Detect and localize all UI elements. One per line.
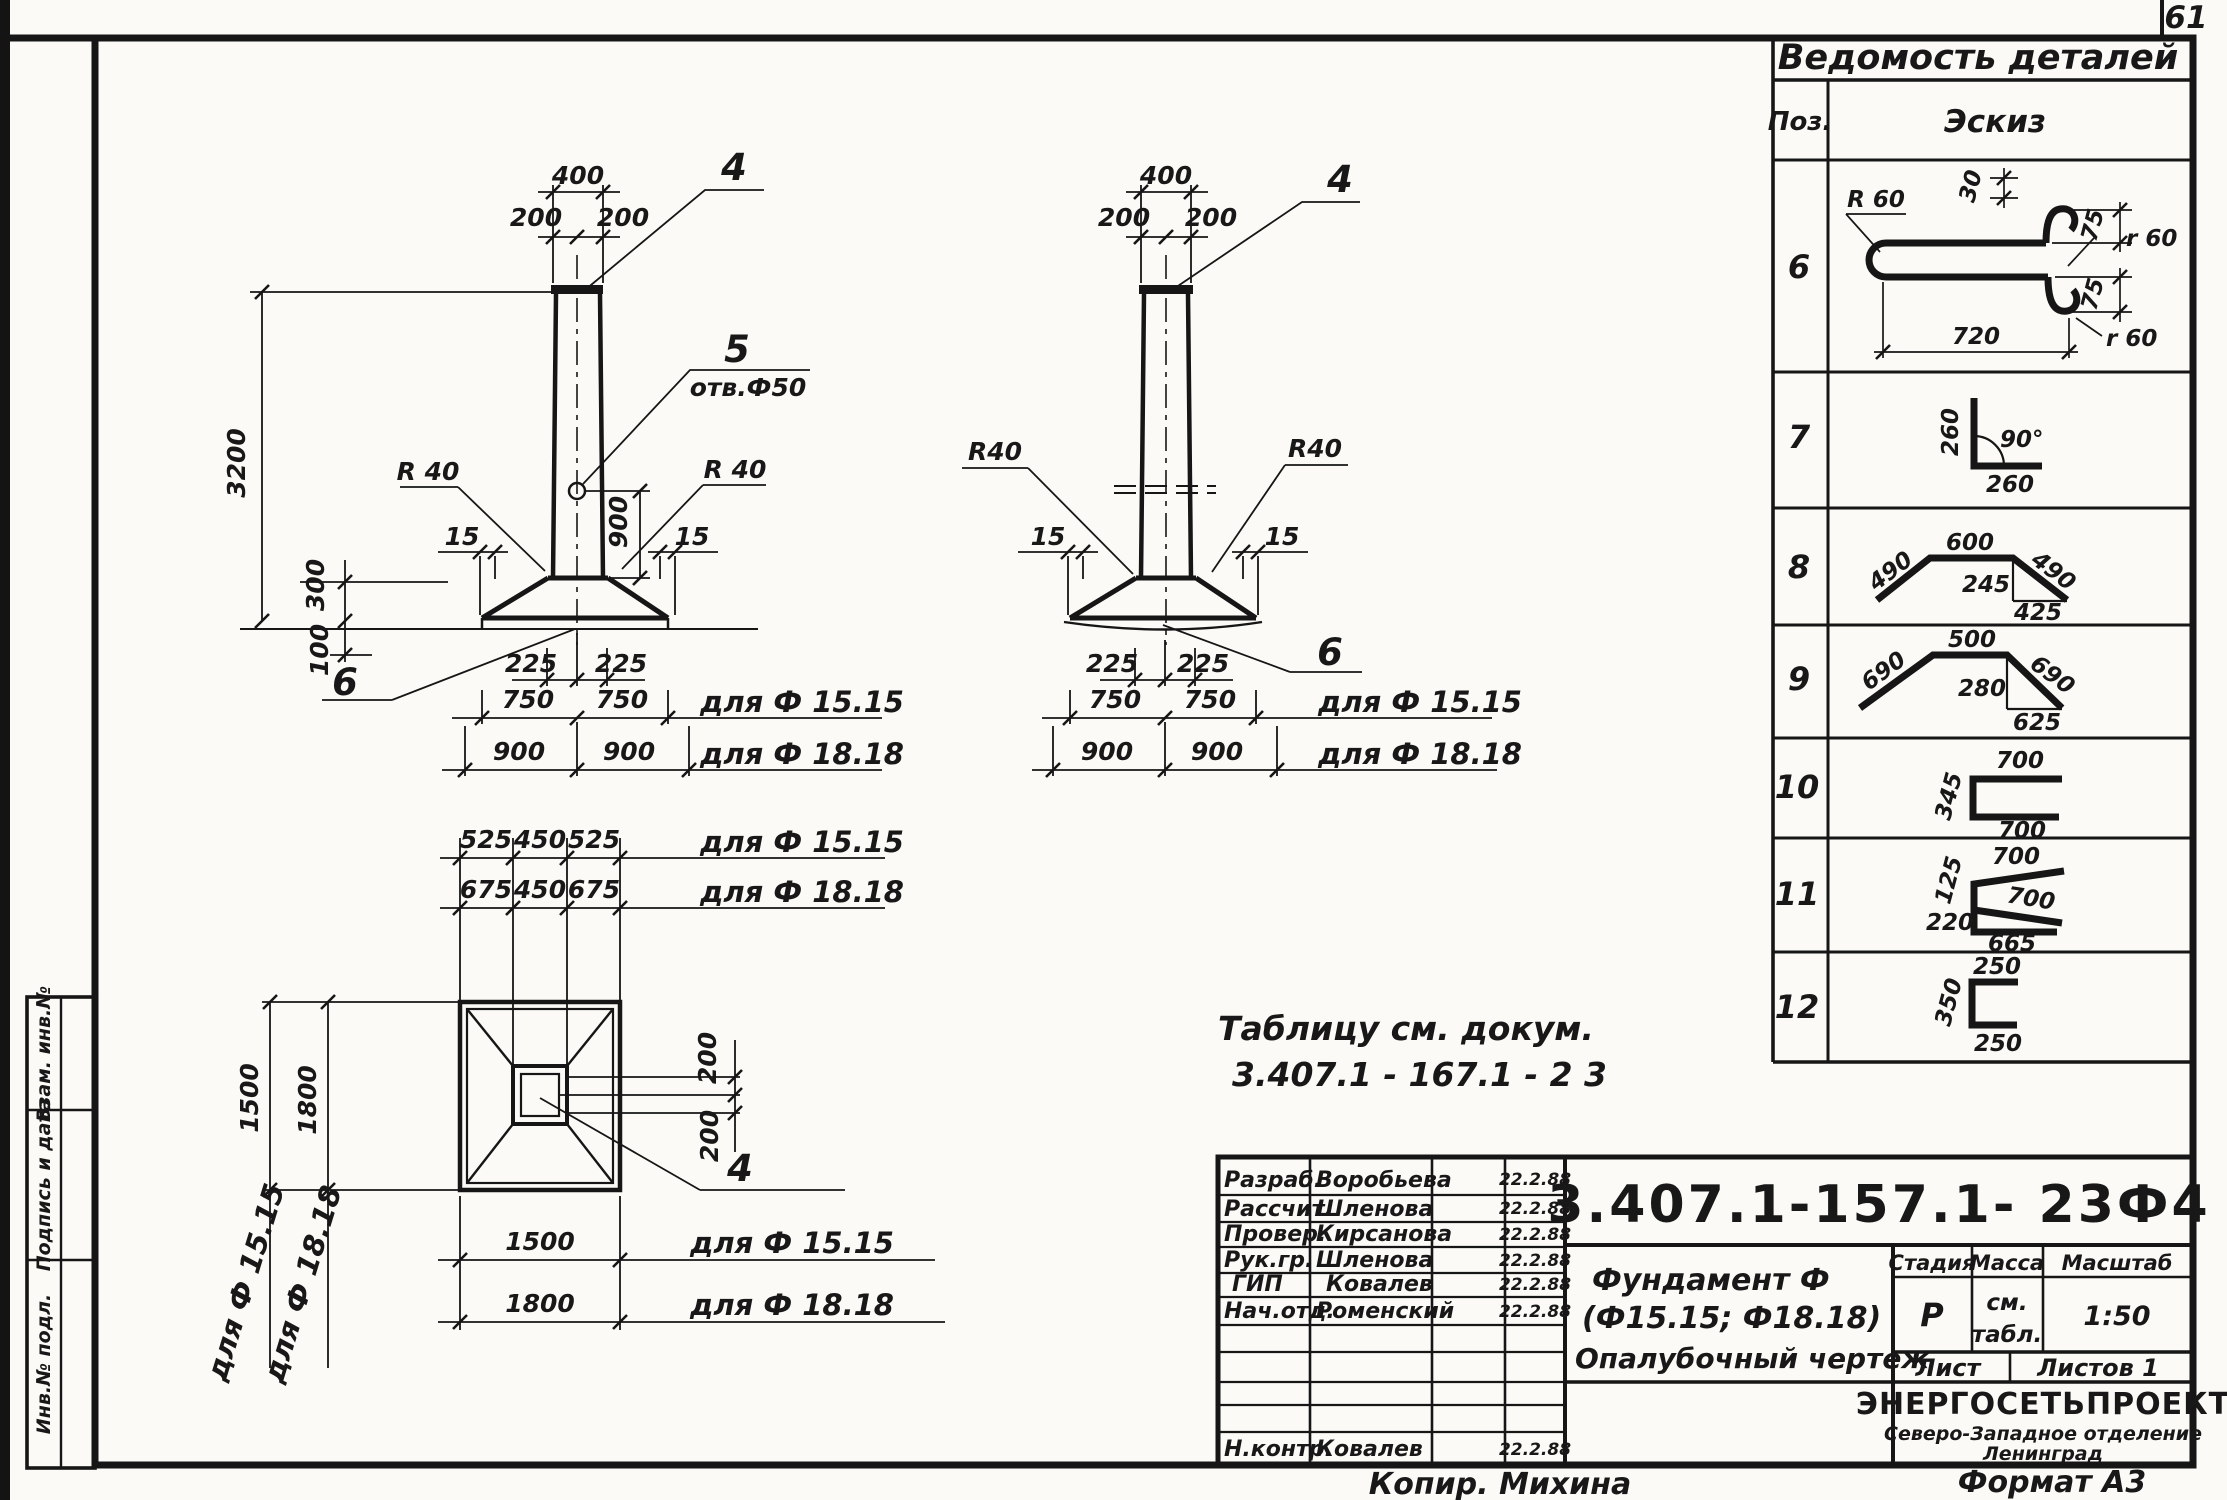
callout-5: 5 <box>724 328 750 371</box>
mass-header: Масса <box>1970 1251 2044 1275</box>
dim-label: 400 <box>551 161 604 190</box>
detail-dim: 250 <box>1974 1031 2022 1057</box>
dim-label: 200 <box>597 203 649 232</box>
note-line-1: Таблицу см. докум. <box>1218 1009 1594 1048</box>
detail-10-sketch <box>1973 779 2062 817</box>
radius-label: R40 <box>1288 434 1342 463</box>
detail-dim: 700 <box>1998 818 2046 844</box>
detail-dim: 260 <box>1986 472 2034 498</box>
dim-label: 400 <box>1139 161 1192 190</box>
pos-number: 12 <box>1775 988 1820 1026</box>
stamp-inv-podl: Инв.№ подл. <box>33 1294 55 1434</box>
variant-label: для Ф 18.18 <box>1317 737 1522 771</box>
dim-label: 525 <box>568 825 620 854</box>
detail-dim: 625 <box>2013 710 2061 736</box>
sig-date: 22.2.88 <box>1499 1302 1571 1322</box>
dim-label: 200 <box>695 1110 724 1162</box>
pos-number: 11 <box>1775 875 1820 913</box>
document-number: 3.407.1-157.1- 23Ф4 <box>1547 1175 2210 1235</box>
dim-label: 900 <box>493 737 545 766</box>
sheet-label: Лист <box>1915 1354 1983 1382</box>
dim-label: 200 <box>693 1032 722 1084</box>
detail-dim: 700 <box>2005 882 2056 915</box>
mass-value-line2: табл. <box>1972 1322 2043 1348</box>
dim-label: 750 <box>502 685 554 714</box>
dim-label: 225 <box>1177 649 1229 678</box>
hole-label: отв.Ф50 <box>690 373 807 402</box>
dim-label: 900 <box>604 496 633 548</box>
sig-role: Рук.гр. <box>1224 1248 1313 1273</box>
sig-role: ГИП <box>1232 1272 1283 1297</box>
pos-number: 7 <box>1788 418 1811 456</box>
sig-name: Шленова <box>1316 1248 1433 1273</box>
dim-label: 15 <box>1031 522 1066 551</box>
dim-label: 200 <box>510 203 562 232</box>
variant-label: для Ф 15.15 <box>699 825 904 859</box>
detail-dim: 350 <box>1930 976 1968 1029</box>
page-number: 61 <box>2164 0 2207 36</box>
dim-label: 15 <box>1265 522 1300 551</box>
sig-name: Шленова <box>1316 1197 1433 1222</box>
stamp-podpis-data: Подпись и дата <box>33 1099 55 1272</box>
sig-date: 22.2.88 <box>1499 1199 1571 1219</box>
detail-dim: 260 <box>1938 408 1964 456</box>
dim-label: 1500 <box>235 1063 264 1133</box>
detail-dim: 30 <box>1955 167 1988 205</box>
dim-label: 675 <box>568 875 620 904</box>
detail-dim: 245 <box>1962 572 2010 598</box>
dim-label: 300 <box>301 559 330 611</box>
detail-dim: r 60 <box>2126 226 2177 252</box>
drawing-title-line2: (Ф15.15; Ф18.18) <box>1582 1301 1881 1336</box>
scan-edge <box>0 0 10 1500</box>
detail-dim: r 60 <box>2106 326 2157 352</box>
drawing-canvas: 61 Взам. инв.№ Подпись и дата Инв.№ подл… <box>0 0 2227 1500</box>
dim-label: 450 <box>513 825 566 854</box>
drawing-sheet: 61 Взам. инв.№ Подпись и дата Инв.№ подл… <box>0 0 2227 1500</box>
variant-label: для Ф 15.15 <box>1317 685 1522 719</box>
stage-header: Стадия <box>1889 1251 1976 1275</box>
drawing-title-line3: Опалубочный чертеж <box>1575 1342 1930 1375</box>
dim-label: 1800 <box>505 1289 575 1318</box>
dim-label: 900 <box>603 737 655 766</box>
detail-dim: 425 <box>2013 600 2062 626</box>
dim-label: 3200 <box>222 428 251 498</box>
sig-role: Разраб. <box>1224 1168 1322 1193</box>
sig-name: Воробьева <box>1316 1168 1452 1193</box>
detail-dim: 90° <box>2000 427 2044 453</box>
detail-dim: 75 <box>2077 206 2110 244</box>
dim-label: 200 <box>1185 203 1237 232</box>
dim-label: 750 <box>1089 685 1141 714</box>
pos-number: 8 <box>1788 548 1810 586</box>
callout-4: 4 <box>726 1147 753 1190</box>
dim-label: 200 <box>1098 203 1150 232</box>
variant-label: для Ф 15.15 <box>699 685 904 719</box>
variant-label: для Ф 15.15 <box>689 1226 894 1260</box>
plan-view-labels: 525 450 525 для Ф 15.15 675 450 675 для … <box>199 825 904 1388</box>
organization-city: Ленинград <box>1982 1443 2103 1465</box>
sig-name: Ковалев <box>1326 1272 1433 1297</box>
variant-label: для Ф 18.18 <box>699 875 904 909</box>
sig-name: Роменский <box>1316 1299 1454 1324</box>
note-line-2: 3.407.1 - 167.1 - 2 3 <box>1232 1055 1607 1094</box>
detail-dim: 600 <box>1946 530 1994 556</box>
parts-list-title: Ведомость деталей <box>1778 38 2179 78</box>
dim-label: 750 <box>1184 685 1236 714</box>
sig-date: 22.2.88 <box>1499 1170 1571 1190</box>
detail-dim: 125 <box>1930 854 1968 907</box>
dim-label: 900 <box>1191 737 1243 766</box>
variant-label: для Ф 18.18 <box>689 1288 894 1322</box>
callout-4: 4 <box>1326 158 1353 201</box>
pos-number: 9 <box>1788 660 1810 698</box>
sig-date: 22.2.88 <box>1499 1275 1571 1295</box>
dim-label: 100 <box>305 624 334 676</box>
callout-6: 6 <box>332 661 358 704</box>
detail-dim: 690 <box>2025 651 2079 700</box>
pos-number: 6 <box>1788 248 1810 286</box>
dim-label: 675 <box>460 875 512 904</box>
side-elevation-labels: 400 200 200 4 R40 R40 15 15 225 225 750 … <box>968 158 1522 771</box>
dim-label: 1800 <box>293 1065 322 1135</box>
scale-header: Масштаб <box>2062 1251 2173 1275</box>
column-header-pos: Поз. <box>1768 107 1833 137</box>
detail-dim: 720 <box>1952 324 2000 350</box>
sheets-label: Листов 1 <box>2036 1354 2159 1382</box>
title-block-text: 3.407.1-157.1- 23Ф4 Разраб. Воробьева 22… <box>1224 1168 2227 1465</box>
dim-label: 15 <box>445 522 480 551</box>
dim-label: 225 <box>505 649 557 678</box>
sig-date: 22.2.88 <box>1499 1440 1571 1460</box>
radius-label: R40 <box>968 437 1022 466</box>
variant-label: для Ф 18.18 <box>699 737 904 771</box>
dim-label: 225 <box>595 649 647 678</box>
sig-name: Ковалев <box>1316 1437 1423 1462</box>
front-elevation-labels: 400 200 200 4 5 отв.Ф50 3200 R 40 R 40 1… <box>222 146 904 771</box>
dim-label: 525 <box>460 825 512 854</box>
radius-label: R 40 <box>397 457 460 486</box>
detail-dim: 220 <box>1926 910 1974 936</box>
column-header-sketch: Эскиз <box>1944 104 2046 140</box>
organization-branch: Северо-Западное отделение <box>1884 1423 2202 1445</box>
dim-label: 1500 <box>505 1227 575 1256</box>
copier-note: Копир. Михина <box>1369 1467 1631 1500</box>
detail-dim: 280 <box>1958 676 2006 702</box>
format-note: Формат А3 <box>1958 1465 2147 1500</box>
dim-label: 15 <box>675 522 710 551</box>
detail-dim: 75 <box>2077 275 2110 313</box>
detail-dim: 345 <box>1930 770 1968 823</box>
callout-6: 6 <box>1317 631 1343 674</box>
pos-number: 10 <box>1775 768 1820 806</box>
sig-role: Провер. <box>1224 1222 1326 1247</box>
note-text: Таблицу см. докум. 3.407.1 - 167.1 - 2 3 <box>1218 1009 1607 1094</box>
sig-date: 22.2.88 <box>1499 1225 1571 1245</box>
detail-12-sketch <box>1972 982 2018 1025</box>
sig-date: 22.2.88 <box>1499 1251 1571 1271</box>
detail-dim: 700 <box>1996 748 2044 774</box>
detail-dim: 250 <box>1973 954 2021 980</box>
dim-label: 225 <box>1086 649 1138 678</box>
organization-name: ЭНЕРГОСЕТЬПРОЕКТ <box>1856 1387 2227 1422</box>
scale-value: 1:50 <box>2083 1301 2150 1332</box>
dim-label: 750 <box>596 685 648 714</box>
stage-value: Р <box>1920 1296 1944 1334</box>
sig-name: Кирсанова <box>1316 1222 1452 1247</box>
drawing-title-line1: Фундамент Ф <box>1592 1263 1830 1298</box>
mass-value-line1: см. <box>1986 1290 2027 1316</box>
radius-label: R 40 <box>704 455 767 484</box>
detail-dim: 500 <box>1948 627 1996 653</box>
detail-dim: 700 <box>1992 844 2040 870</box>
detail-dim: R 60 <box>1847 187 1905 213</box>
dim-label: 900 <box>1081 737 1133 766</box>
callout-4: 4 <box>720 146 747 189</box>
dim-label: 450 <box>513 875 566 904</box>
